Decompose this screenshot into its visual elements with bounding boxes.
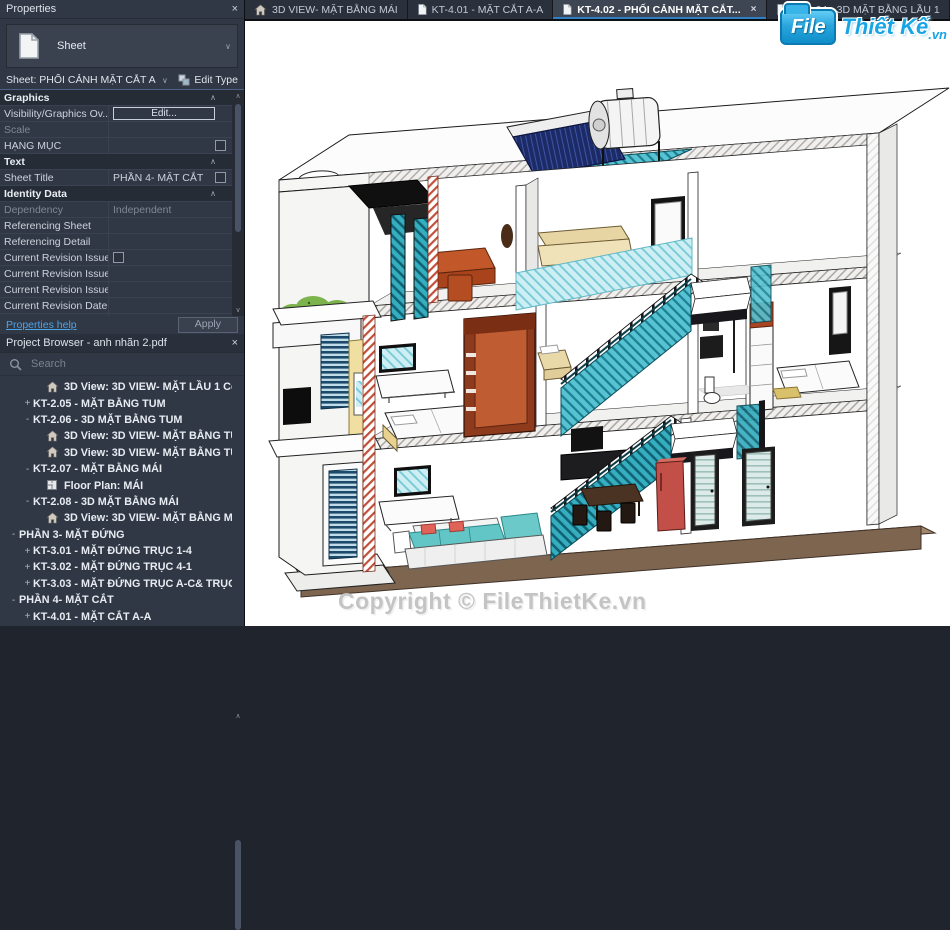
tree-item[interactable]: -PHẦN 3- MẶT ĐỨNG [0,527,232,543]
section-label: Text [4,156,25,168]
expand-icon[interactable]: + [22,578,33,589]
property-section-header[interactable]: Text∧ [0,154,232,170]
view-tab[interactable]: 3D VIEW- MẶT BẰNG MÁI [245,0,408,19]
close-icon[interactable]: × [232,3,238,15]
tree-item[interactable]: +KT-4.01 - MẶT CẮT A-A [0,608,232,624]
cut-wall [363,315,375,572]
tree-item-label: Floor Plan: MÁI [64,480,143,492]
wall-tv [571,426,603,452]
type-selector[interactable]: Sheet ∨ [6,24,238,68]
property-section-header[interactable]: Identity Data∧ [0,186,232,202]
scrollbar-thumb[interactable] [235,104,241,232]
home-icon [46,381,59,393]
home-icon [46,512,61,525]
tree-item-label: 3D View: 3D VIEW- MẶT LẦU 1 Copy [64,381,232,393]
search-bar [0,353,244,376]
properties-grid: Graphics∧Visibility/Graphics Ov...Edit..… [0,90,232,316]
vanity [700,335,723,359]
tree-item[interactable]: 3D View: 3D VIEW- MẶT BẰNG TUM [0,428,232,444]
tree-item-label: KT-2.05 - MẶT BẰNG TUM [33,398,166,410]
tree-item-label: KT-2.07 - MẶT BẰNG MÁI [33,463,162,475]
property-row[interactable]: DependencyIndependent [0,202,232,218]
main-area: 3D VIEW- MẶT BẰNG MÁIKT-4.01 - MẶT CẮT A… [244,0,950,626]
3d-section-view[interactable]: Copyright © FileThietKe.vn Copyright © F… [245,21,950,626]
property-section-header[interactable]: Graphics∧ [0,90,232,106]
fridge [656,461,685,531]
property-value[interactable] [109,282,232,297]
property-value[interactable] [109,234,232,249]
floorplan-icon [46,479,61,492]
properties-help-link[interactable]: Properties help [6,319,77,331]
scroll-up-icon[interactable]: ∧ [232,90,244,100]
home-icon [254,4,267,16]
property-row[interactable]: Referencing Sheet [0,218,232,234]
collapse-icon[interactable]: - [22,496,33,507]
expand-icon[interactable]: + [22,562,33,573]
apply-bar: Properties help Apply [0,316,244,335]
property-label: HẠNG MỤC [0,138,109,153]
properties-panel: Properties × Sheet ∨ Sheet: PHỐI CẢNH MẶ… [0,0,244,91]
tree-item[interactable]: +KT-3.02 - MẶT ĐỨNG TRỤC 4-1 [0,559,232,575]
tree-item[interactable]: Floor Plan: MÁI [0,477,232,493]
property-value[interactable] [109,250,232,265]
tree-item-label: PHẦN 4- MẶT CẮT [19,594,114,606]
chevron-down-icon[interactable]: ∨ [162,76,168,85]
sheet-type-icon [9,27,47,65]
expand-icon[interactable]: + [22,398,33,409]
louver-window [321,333,349,409]
section-label: Identity Data [4,188,67,200]
property-row[interactable]: Visibility/Graphics Ov...Edit... [0,106,232,122]
tree-item[interactable]: 3D View: 3D VIEW- MẶT BẰNG TUM [0,445,232,461]
sheet-selector[interactable]: Sheet: PHỐI CẢNH MẶT CẮT A-A [6,74,156,86]
property-label: Current Revision Issue... [0,266,109,281]
chair [597,511,611,531]
tree-item[interactable]: +KT-3.03 - MẶT ĐỨNG TRỤC A-C& TRỤC C-A [0,576,232,592]
property-value[interactable] [109,122,232,137]
tree-item-label: KT-3.02 - MẶT ĐỨNG TRỤC 4-1 [33,561,192,573]
tree-item-label: KT-4.01 - MẶT CẮT A-A [33,611,151,623]
properties-header: Properties × [0,0,244,19]
floorplan-icon [46,479,58,491]
project-browser-panel: Project Browser - anh nhãn 2.pdf × 3D Vi… [0,334,244,626]
cut-wall [428,176,438,303]
home-icon [46,446,59,458]
view-tab[interactable]: KT-4.01 - MẶT CẮT A-A [408,0,554,19]
property-row[interactable]: Current Revision Date [0,298,232,314]
logo-folder-icon: File [780,9,836,45]
apply-button[interactable]: Apply [178,317,238,333]
watermark-text: Copyright © FileThietKe.vn [338,588,647,614]
scroll-up-icon[interactable]: ∧ [232,710,244,720]
close-icon[interactable]: × [232,337,238,349]
view-tab[interactable]: KT-4.02 - PHỐI CẢNH MẶT CẮT...× [553,0,766,19]
property-value[interactable] [109,298,232,313]
edit-type-icon [178,74,190,86]
property-label: Referencing Sheet [0,218,109,233]
properties-scrollbar[interactable]: ∧ ∨ [232,90,244,316]
property-value[interactable] [109,138,232,153]
sheet-icon [562,3,572,16]
chair [621,503,635,523]
sheet-selector-row: Sheet: PHỐI CẢNH MẶT CẮT A-A ∨ Edit Type [0,71,244,91]
tab-label: KT-4.01 - MẶT CẮT A-A [432,4,544,16]
property-row[interactable]: Current Revision Issued [0,250,232,266]
tree-item-label: KT-2.06 - 3D MẶT BẰNG TUM [33,414,182,426]
project-browser-header: Project Browser - anh nhãn 2.pdf × [0,334,244,353]
property-value[interactable]: Independent [109,202,232,217]
collapse-icon[interactable]: ∧ [210,93,232,102]
tree-item-label: 3D View: 3D VIEW- MẶT BẰNG TUM [64,447,232,459]
properties-title: Properties [6,3,56,15]
value-text: PHẦN 4- MẶT CẮT [113,172,203,184]
terrace-door-glass [391,214,405,321]
property-label: Scale [0,122,109,137]
toilet [705,377,714,393]
tree-item-label: KT-2.08 - 3D MẶT BẰNG MÁI [33,496,179,508]
collapse-icon[interactable]: ∧ [210,157,232,166]
property-row[interactable]: Current Revision Issue... [0,266,232,282]
property-value[interactable] [109,218,232,233]
search-icon [9,358,22,371]
wall-mirror [501,224,513,248]
tree-item[interactable]: +KT-2.05 - MẶT BẰNG TUM [0,395,232,411]
property-value[interactable] [109,266,232,281]
property-row[interactable]: HẠNG MỤC [0,138,232,154]
value-text: Independent [113,204,171,216]
property-label: Current Revision Issue... [0,282,109,297]
tree-item[interactable]: +KT-3.01 - MẶT ĐỨNG TRỤC 1-4 [0,543,232,559]
property-row[interactable]: Sheet TitlePHẦN 4- MẶT CẮT [0,170,232,186]
tree-item[interactable]: -KT-2.06 - 3D MẶT BẰNG TUM [0,412,232,428]
property-label: Current Revision Date [0,298,109,313]
property-label: Sheet Title [0,170,109,185]
property-row[interactable]: Scale [0,122,232,138]
home-icon [46,446,61,459]
tree-item-label: KT-3.01 - MẶT ĐỨNG TRỤC 1-4 [33,545,192,557]
louver-window [329,469,357,559]
tree-item[interactable]: -KT-2.07 - MẶT BẰNG MÁI [0,461,232,477]
tree-item-label: 3D View: 3D VIEW- MẶT BẰNG TUM [64,430,232,442]
chair [448,275,472,301]
home-icon [46,512,59,524]
tree-item-label: PHẦN 3- MẶT ĐỨNG [19,529,125,541]
left-dock: Properties × Sheet ∨ Sheet: PHỐI CẢNH MẶ… [0,0,244,626]
property-value[interactable]: PHẦN 4- MẶT CẮT [109,170,232,185]
type-selector-label: Sheet [57,40,86,52]
home-icon [46,381,61,394]
logo-file-text: File [791,16,825,39]
scrollbar-thumb[interactable] [235,840,241,930]
edit-button[interactable]: Edit... [113,107,215,120]
checkbox[interactable] [215,172,226,183]
tree-item[interactable]: 3D View: 3D VIEW- MẶT LẦU 1 Copy [0,379,232,395]
collapse-icon[interactable]: - [8,595,19,606]
section-label: Graphics [4,92,50,104]
scroll-down-icon[interactable]: ∨ [232,306,244,314]
collapse-icon[interactable]: - [22,464,33,475]
facade-opening [283,387,311,425]
expand-icon[interactable]: + [22,611,33,622]
property-value[interactable]: Edit... [109,106,232,121]
tree-item[interactable]: -KT-2.08 - 3D MẶT BẰNG MÁI [0,494,232,510]
tab-close-icon[interactable]: × [751,4,757,15]
collapse-icon[interactable]: - [8,529,19,540]
tree-item[interactable]: -PHẦN 4- MẶT CẮT [0,592,232,608]
filethietke-logo: File Thiết Kế .vn [780,9,947,45]
property-label: Visibility/Graphics Ov... [0,106,109,121]
logo-thietke-text: Thiết Kế [841,14,928,40]
water-tank [587,87,661,150]
property-label: Dependency [0,202,109,217]
property-row[interactable]: Referencing Detail [0,234,232,250]
edit-type-button[interactable]: Edit Type [178,74,238,86]
collapse-icon[interactable]: ∧ [210,189,232,198]
tab-label: 3D VIEW- MẶT BẰNG MÁI [272,4,398,16]
project-browser-tree: 3D View: 3D VIEW- MẶT LẦU 1 Copy+KT-2.05… [0,375,232,626]
expand-icon[interactable]: + [22,546,33,557]
chevron-down-icon[interactable]: ∨ [225,42,231,51]
chair [573,505,587,525]
logo-vn-text: .vn [928,27,947,45]
search-input[interactable] [29,357,183,371]
sheet-icon [417,3,427,16]
checkbox[interactable] [215,140,226,151]
viewport-canvas[interactable]: Copyright © FileThietKe.vn Copyright © F… [245,19,950,626]
terrace-door-glass [414,218,428,319]
property-label: Referencing Detail [0,234,109,249]
tree-item[interactable]: 3D View: 3D VIEW- MẶT BẰNG MÁI [0,510,232,526]
watermark: Copyright © FileThietKe.vn Copyright © F… [338,588,648,616]
home-icon [46,430,61,443]
tree-item-label: KT-3.03 - MẶT ĐỨNG TRỤC A-C& TRỤC C-A [33,578,232,590]
tab-label: KT-4.02 - PHỐI CẢNH MẶT CẮT... [577,4,740,16]
home-icon [46,430,59,442]
project-browser-title: Project Browser - anh nhãn 2.pdf [6,337,167,349]
property-label: Current Revision Issued [0,250,109,265]
collapse-icon[interactable]: - [22,414,33,425]
tree-item-label: 3D View: 3D VIEW- MẶT BẰNG MÁI [64,512,232,524]
checkbox[interactable] [113,252,124,263]
property-row[interactable]: Current Revision Issue... [0,282,232,298]
